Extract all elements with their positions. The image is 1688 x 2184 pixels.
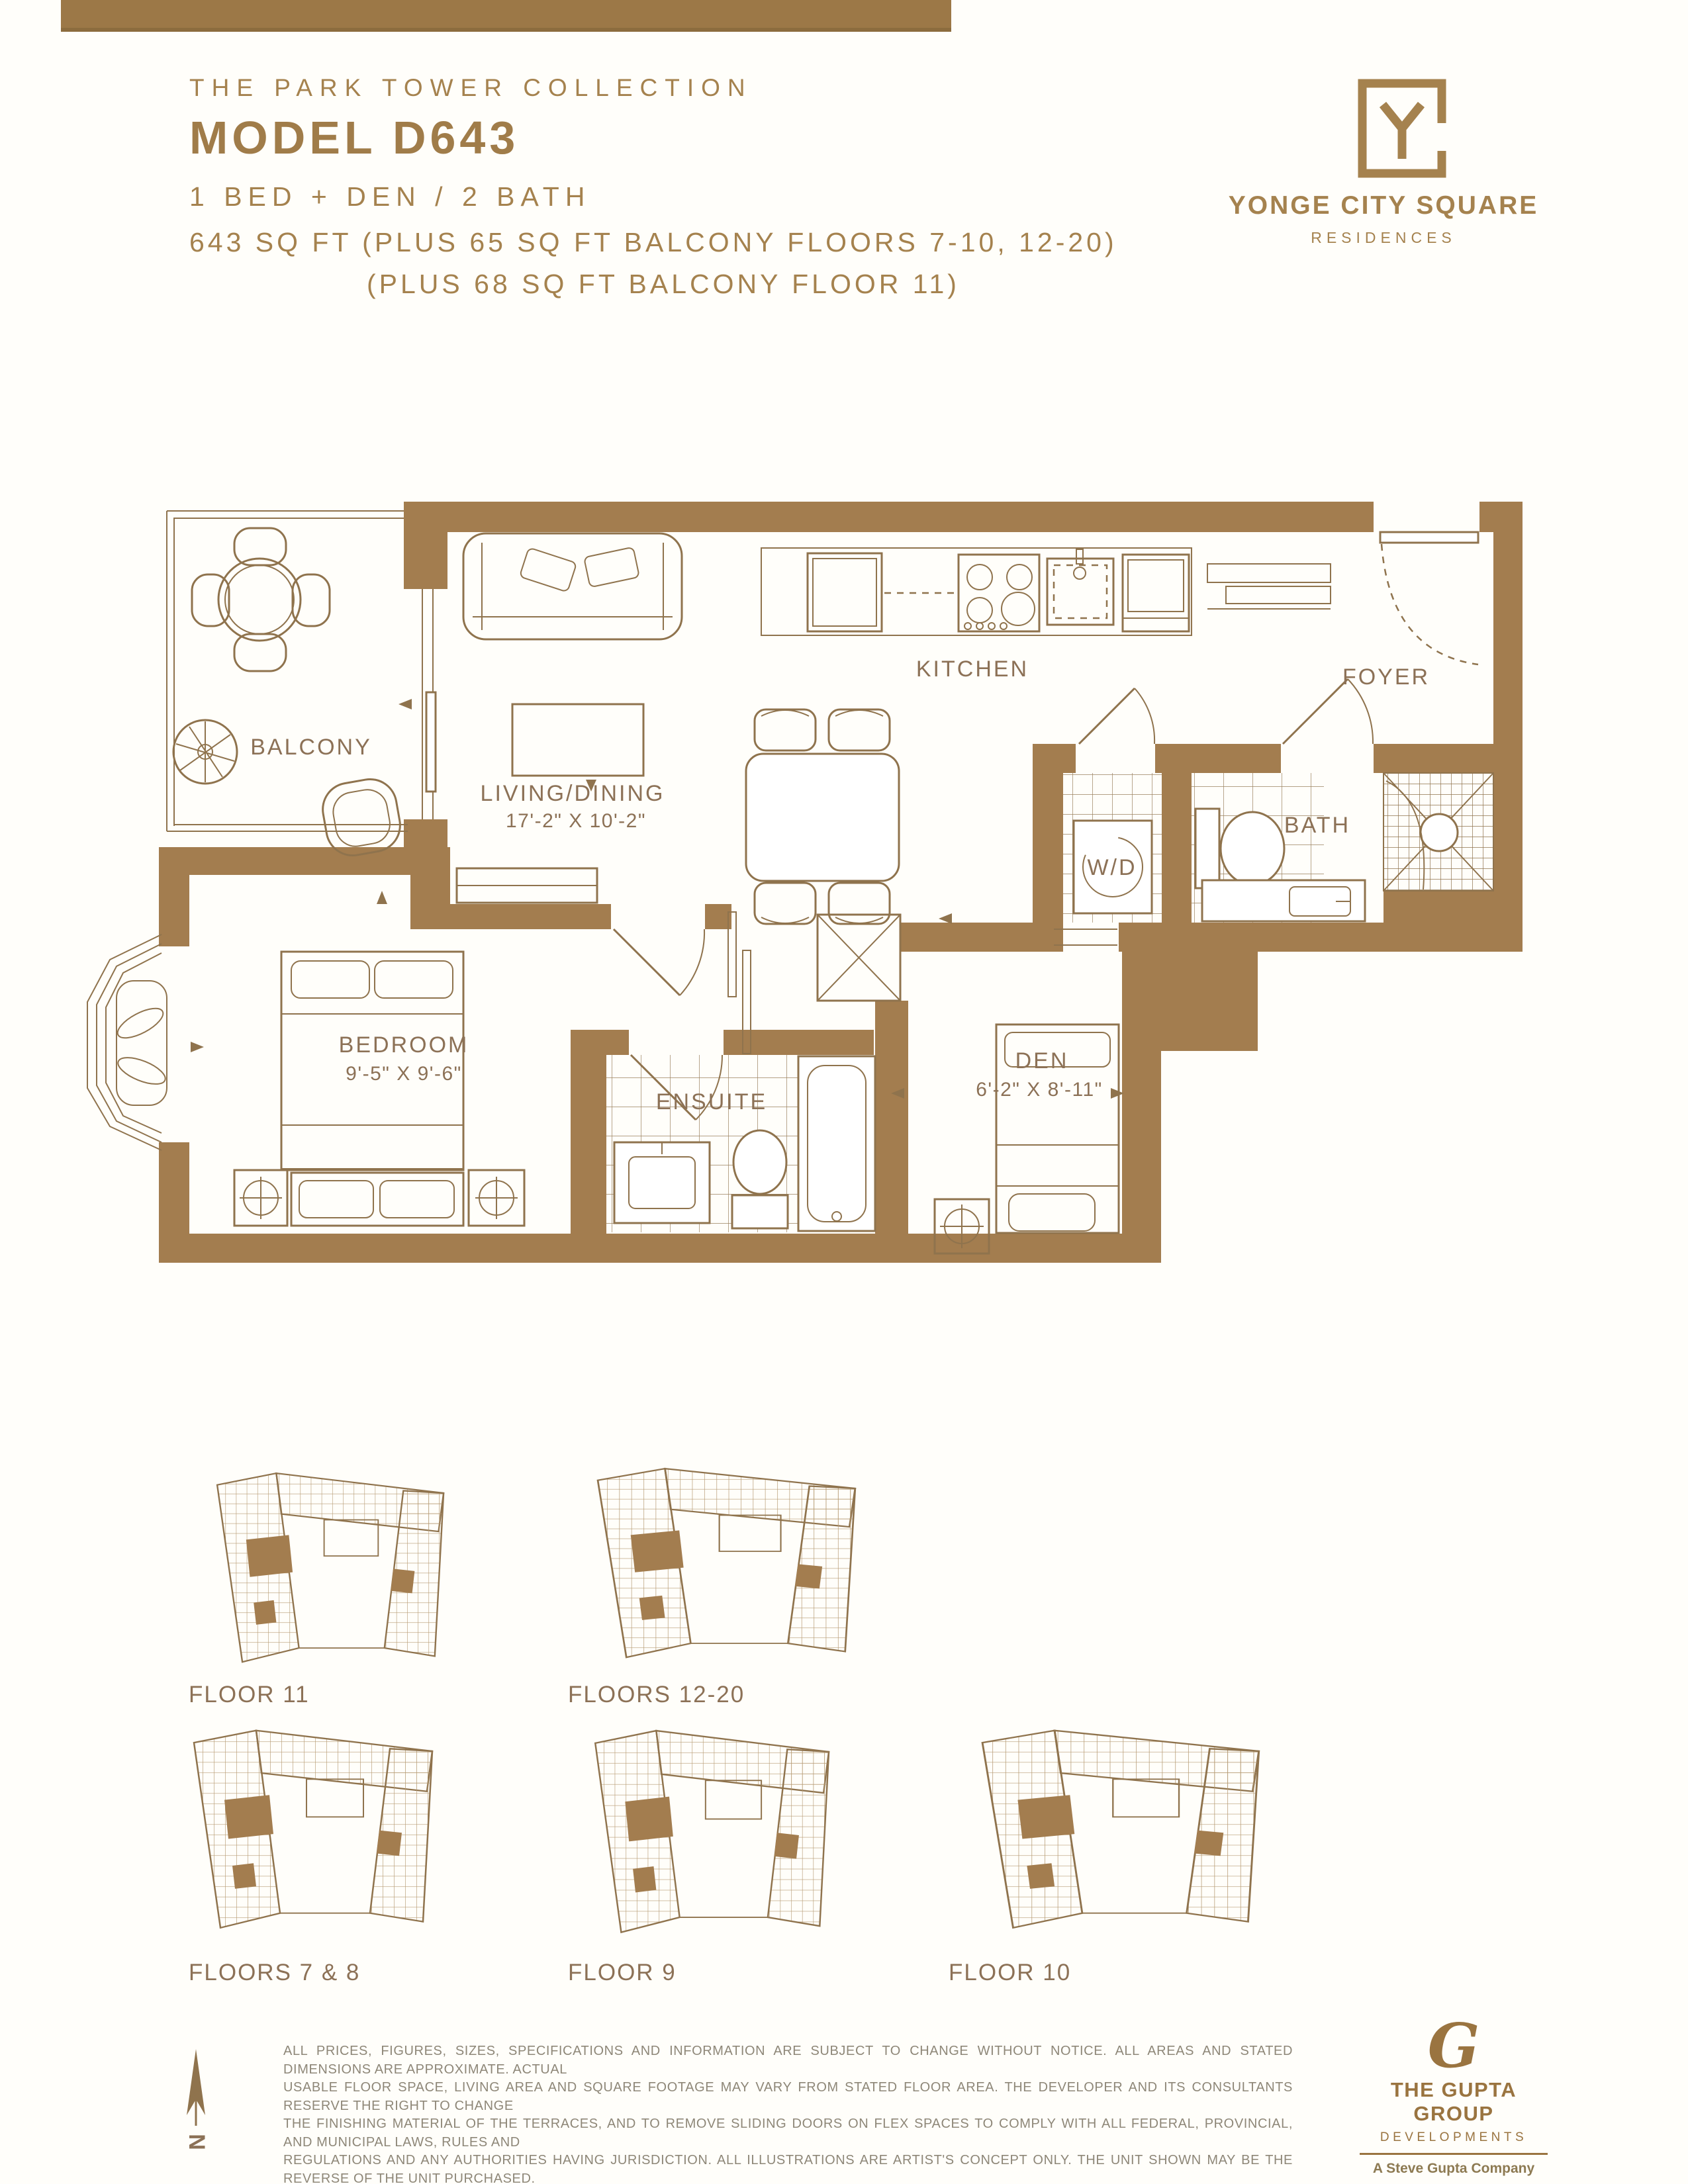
north-arrow: N [184, 2049, 209, 2152]
keyplate-label-floors-12-20: FLOORS 12-20 [568, 1682, 745, 1707]
shaft-closet [818, 915, 900, 1001]
unit-floorplan: BALCONY LIVING/DINING 17'-2" X 10'-2" KI… [87, 502, 1523, 1263]
keyplate-floors-7-8 [194, 1731, 432, 1928]
label-bath: BATH [1284, 813, 1350, 838]
area-line-2: (PLUS 68 SQ FT BALCONY FLOOR 11) [367, 269, 1117, 300]
dims-den: 6'-2" X 8'-11" [976, 1079, 1103, 1101]
planter [173, 720, 237, 784]
dims-living-dining: 17'-2" X 10'-2" [506, 810, 646, 832]
foyer-area [1207, 532, 1478, 664]
developer-division: DEVELOPMENTS [1350, 2130, 1557, 2145]
living-dining [457, 533, 899, 924]
floorplan-canvas: YONGE CITY SQUARE RESIDENCES [0, 0, 1688, 2184]
main-bath [1192, 679, 1373, 923]
label-den: DEN [1015, 1048, 1069, 1073]
north-label: N [184, 2134, 209, 2152]
keyplate-floor-10 [982, 1731, 1259, 1928]
ensuite-vanity [614, 1142, 710, 1223]
developer-rule [1360, 2153, 1548, 2155]
label-ensuite: ENSUITE [656, 1089, 767, 1115]
coffee-table [512, 704, 643, 776]
disclaimer: ALL PRICES, FIGURES, SIZES, SPECIFICATIO… [283, 2042, 1293, 2184]
balcony-table-set [192, 528, 330, 671]
keyplate-floor-11 [217, 1473, 444, 1662]
logo-y-icon [1383, 105, 1421, 159]
disclaimer-line: REGULATIONS AND ANY AUTHORITIES HAVING J… [283, 2152, 1293, 2184]
label-kitchen: KITCHEN [916, 657, 1029, 682]
disclaimer-line: ALL PRICES, FIGURES, SIZES, SPECIFICATIO… [283, 2042, 1293, 2079]
kitchen-area [761, 548, 1192, 635]
balcony [167, 511, 436, 860]
fridge [808, 553, 882, 631]
nightstand-left [234, 1170, 287, 1226]
bedroom-bed [281, 952, 463, 1170]
dishwasher [1123, 555, 1189, 631]
bed-bench [291, 1173, 463, 1226]
brand-logo: YONGE CITY SQUARE RESIDENCES [1229, 83, 1539, 246]
developer-name: THE GUPTA GROUP [1350, 2078, 1557, 2126]
nightstand-right [469, 1170, 524, 1226]
keyplate-floor-9 [595, 1731, 829, 1933]
label-foyer: FOYER [1342, 664, 1430, 690]
header: THE PARK TOWER COLLECTION MODEL D643 1 B… [189, 74, 1117, 300]
keyplate-label-floor-10: FLOOR 10 [949, 1960, 1071, 1985]
area-line-1: 643 SQ FT (PLUS 65 SQ FT BALCONY FLOORS … [189, 227, 1117, 258]
keyplate-label-floor-9: FLOOR 9 [568, 1960, 677, 1985]
developer-tagline: A Steve Gupta Company [1350, 2161, 1557, 2177]
ensuite-toilet [732, 1130, 788, 1228]
dims-bedroom: 9'-5" X 9'-6" [346, 1063, 462, 1085]
den-threshold [1054, 929, 1117, 945]
collection-title: THE PARK TOWER COLLECTION [189, 74, 1117, 102]
bay-window [87, 934, 169, 1150]
disclaimer-line: THE FINISHING MATERIAL OF THE TERRACES, … [283, 2115, 1293, 2152]
label-living-dining: LIVING/DINING [481, 781, 665, 806]
keyplates: FLOOR 11 FLOORS 12-20 FLOORS 7 & 8 FLOOR… [189, 1469, 1259, 1985]
keyplate-label-floors-7-8: FLOORS 7 & 8 [189, 1960, 360, 1985]
brand-name: YONGE CITY SQUARE [1229, 191, 1539, 220]
developer-monogram-icon: G [1350, 2017, 1557, 2074]
dining-set [746, 709, 899, 924]
laundry-closet [1063, 688, 1162, 923]
label-balcony: BALCONY [250, 735, 372, 760]
configuration: 1 BED + DEN / 2 BATH [189, 181, 1117, 212]
cooktop [959, 555, 1039, 631]
disclaimer-line: USABLE FLOOR SPACE, LIVING AREA AND SQUA… [283, 2079, 1293, 2115]
tv-console [457, 868, 597, 903]
keyplate-label-floor-11: FLOOR 11 [189, 1682, 310, 1707]
bedroom-door-swing [680, 929, 704, 995]
brand-descriptor: RESIDENCES [1311, 229, 1456, 246]
balcony-chair [318, 775, 404, 860]
entry-door-swing [1382, 544, 1478, 664]
model-title: MODEL D643 [189, 111, 1117, 164]
label-laundry: W/D [1087, 855, 1137, 880]
bath-toilet [1196, 809, 1284, 888]
ensuite-area [606, 1055, 875, 1232]
kitchen-sink [1047, 549, 1113, 625]
foyer-closet [1207, 564, 1331, 609]
balcony-slider-panel [426, 692, 436, 792]
shower-drain [1421, 814, 1458, 851]
developer-logo: G THE GUPTA GROUP DEVELOPMENTS A Steve G… [1350, 2017, 1557, 2177]
keyplate-floors-12-20 [598, 1469, 855, 1657]
label-bedroom: BEDROOM [339, 1032, 469, 1058]
sofa [463, 533, 682, 639]
ensuite-tub [798, 1056, 875, 1231]
brochure-page: THE PARK TOWER COLLECTION MODEL D643 1 B… [0, 0, 1688, 2184]
shower [1383, 773, 1493, 891]
entry-door-leaf [1380, 532, 1478, 543]
bath-vanity [1202, 880, 1365, 921]
